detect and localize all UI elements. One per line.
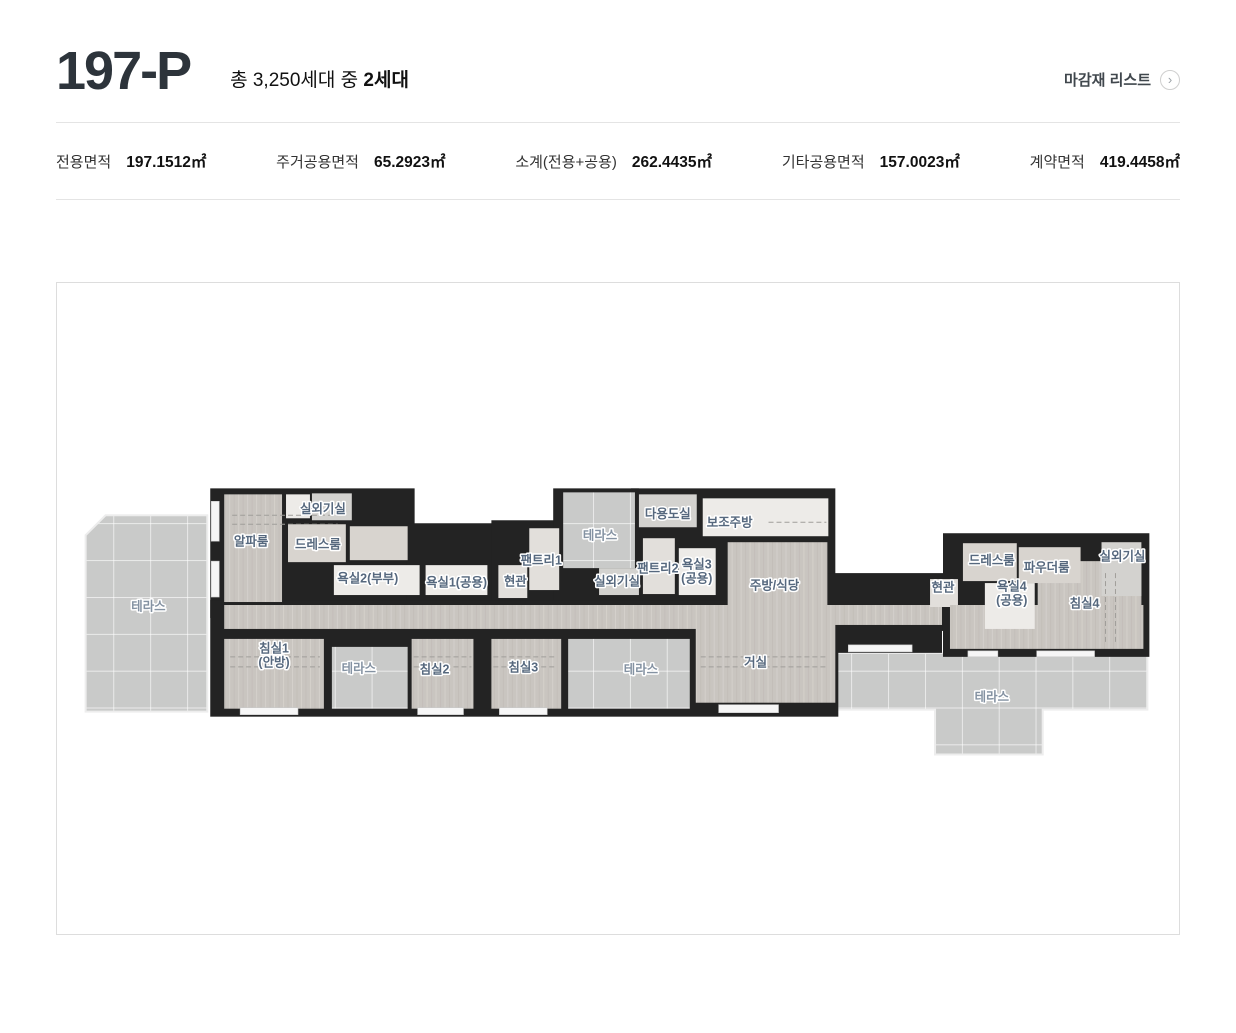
room-label: 실외기실 xyxy=(300,501,346,516)
room-label: 테라스 xyxy=(624,661,659,676)
stat-label: 주거공용면적 xyxy=(276,151,359,172)
window xyxy=(211,561,219,597)
corridor-right xyxy=(822,605,942,625)
room-label: 보조주방 xyxy=(707,515,753,530)
room-label: 거실 xyxy=(744,654,767,669)
room-label: 테라스 xyxy=(131,598,166,613)
stat-value: 197.1512㎡ xyxy=(126,150,206,172)
window xyxy=(418,708,464,715)
room-label: 현관 xyxy=(504,574,527,589)
unit-type-title: 197-P xyxy=(56,44,190,98)
stat-label: 기타공용면적 xyxy=(782,151,865,172)
room-label: 테라스 xyxy=(342,660,377,675)
window xyxy=(719,705,779,713)
room-label: 욕실1(공용) xyxy=(426,575,487,590)
room-label: 욕실4(공용) xyxy=(996,579,1027,608)
unit-count-prefix: 총 3,250세대 중 xyxy=(230,70,363,91)
window xyxy=(240,708,298,715)
area-stats: 전용면적 197.1512㎡ 주거공용면적 65.2923㎡ 소계(전용+공용)… xyxy=(56,123,1180,199)
stat-other-common-area: 기타공용면적 157.0023㎡ xyxy=(782,150,960,172)
room-label: 침실3 xyxy=(508,659,538,674)
stat-value: 262.4435㎡ xyxy=(632,150,712,172)
room-label: 주방/식당 xyxy=(750,578,800,593)
room-label: 팬트리1 xyxy=(521,553,562,568)
stat-exclusive-area: 전용면적 197.1512㎡ xyxy=(56,150,206,172)
room-label: 테라스 xyxy=(583,528,618,543)
room-label: 팬트리2 xyxy=(637,561,678,576)
divider-stats xyxy=(56,199,1180,200)
floorplan-page: 197-P 총 3,250세대 중 2세대 마감재 리스트 › 전용면적 197… xyxy=(0,0,1236,1033)
room-label: 드레스룸 xyxy=(295,537,341,552)
finish-material-link-label: 마감재 리스트 xyxy=(1064,69,1151,90)
terrace-small-1 xyxy=(332,647,408,709)
chevron-right-circle-icon: › xyxy=(1160,70,1180,90)
stat-subtotal-area: 소계(전용+공용) 262.4435㎡ xyxy=(515,150,712,172)
room-label: 알파룸 xyxy=(234,534,269,549)
page-header: 197-P 총 3,250세대 중 2세대 마감재 리스트 › xyxy=(0,0,1236,98)
room-label: 침실4 xyxy=(1070,596,1100,611)
window xyxy=(1037,651,1095,657)
unit-count-subtitle: 총 3,250세대 중 2세대 xyxy=(230,65,409,92)
dress-left-ext xyxy=(350,526,408,560)
room-label: 욕실3(공용) xyxy=(681,557,712,586)
window xyxy=(968,651,998,657)
room-label: 욕실2(부부) xyxy=(337,571,398,586)
stat-label: 소계(전용+공용) xyxy=(515,151,617,172)
window xyxy=(211,501,219,541)
room-label: 드레스룸 xyxy=(969,553,1015,568)
room-label: 실외기실 xyxy=(594,574,640,589)
stat-label: 계약면적 xyxy=(1030,151,1085,172)
room-living xyxy=(696,605,836,703)
room-label: 현관 xyxy=(932,580,955,595)
window xyxy=(848,645,912,652)
unit-count-bold: 2세대 xyxy=(363,70,409,91)
room-label: 파우더룸 xyxy=(1024,560,1070,575)
corridor xyxy=(224,605,703,629)
stat-value: 65.2923㎡ xyxy=(374,150,446,172)
finish-material-link[interactable]: 마감재 리스트 › xyxy=(1064,69,1180,90)
stat-label: 전용면적 xyxy=(56,151,111,172)
room-label: 침실2 xyxy=(420,661,450,676)
room-label: 침실1(안방) xyxy=(258,640,289,669)
floorplan-container: 테라스실외기실알파룸드레스룸욕실2(부부)욕실1(공용)현관팬트리1테라스실외기… xyxy=(56,282,1180,935)
stat-contract-area: 계약면적 419.4458㎡ xyxy=(1030,150,1180,172)
room-label: 다용도실 xyxy=(645,506,691,521)
room-label: 실외기실 xyxy=(1100,549,1146,564)
floorplan-svg: 테라스실외기실알파룸드레스룸욕실2(부부)욕실1(공용)현관팬트리1테라스실외기… xyxy=(57,283,1179,934)
window xyxy=(499,708,547,715)
stat-residential-common-area: 주거공용면적 65.2923㎡ xyxy=(276,150,445,172)
stat-value: 419.4458㎡ xyxy=(1100,150,1180,172)
stat-value: 157.0023㎡ xyxy=(880,150,960,172)
room-label: 테라스 xyxy=(975,689,1010,704)
